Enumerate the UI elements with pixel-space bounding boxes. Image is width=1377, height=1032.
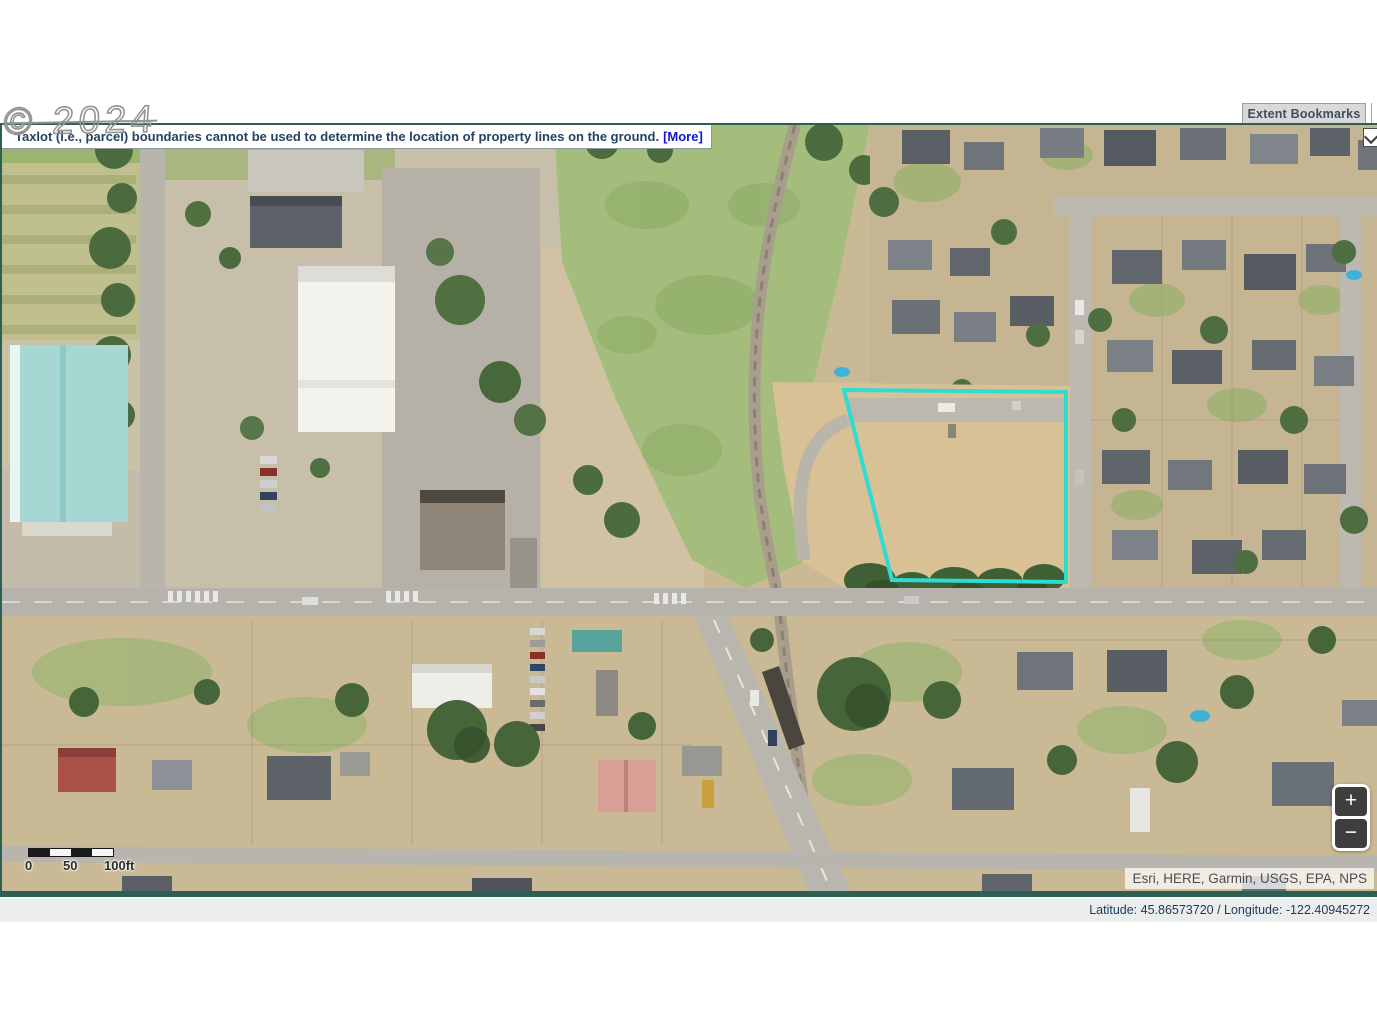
aerial-imagery <box>2 125 1377 891</box>
status-bar: Latitude: 45.86573720 / Longitude: -122.… <box>0 897 1377 922</box>
extent-bookmarks-tab[interactable]: Extent Bookmarks <box>1242 103 1366 124</box>
top-strip: Extent Bookmarks <box>0 0 1377 123</box>
gis-viewer: Extent Bookmarks © 2024 <box>0 0 1377 1032</box>
zoom-in-button[interactable]: + <box>1335 787 1367 816</box>
edit-tool-icon[interactable] <box>1363 128 1377 147</box>
tab-separator <box>1371 103 1372 124</box>
zoom-out-button[interactable]: − <box>1335 819 1367 848</box>
more-link[interactable]: [More] <box>663 129 703 144</box>
coordinates-readout: Latitude: 45.86573720 / Longitude: -122.… <box>1089 903 1370 917</box>
map-attribution: Esri, HERE, Garmin, USGS, EPA, NPS <box>1125 868 1374 889</box>
disclaimer-text: Taxlot (i.e., parcel) boundaries cannot … <box>15 129 659 144</box>
map-canvas[interactable]: Taxlot (i.e., parcel) boundaries cannot … <box>0 123 1377 897</box>
zoom-control: + − <box>1332 784 1370 851</box>
disclaimer-bar: Taxlot (i.e., parcel) boundaries cannot … <box>2 125 712 149</box>
